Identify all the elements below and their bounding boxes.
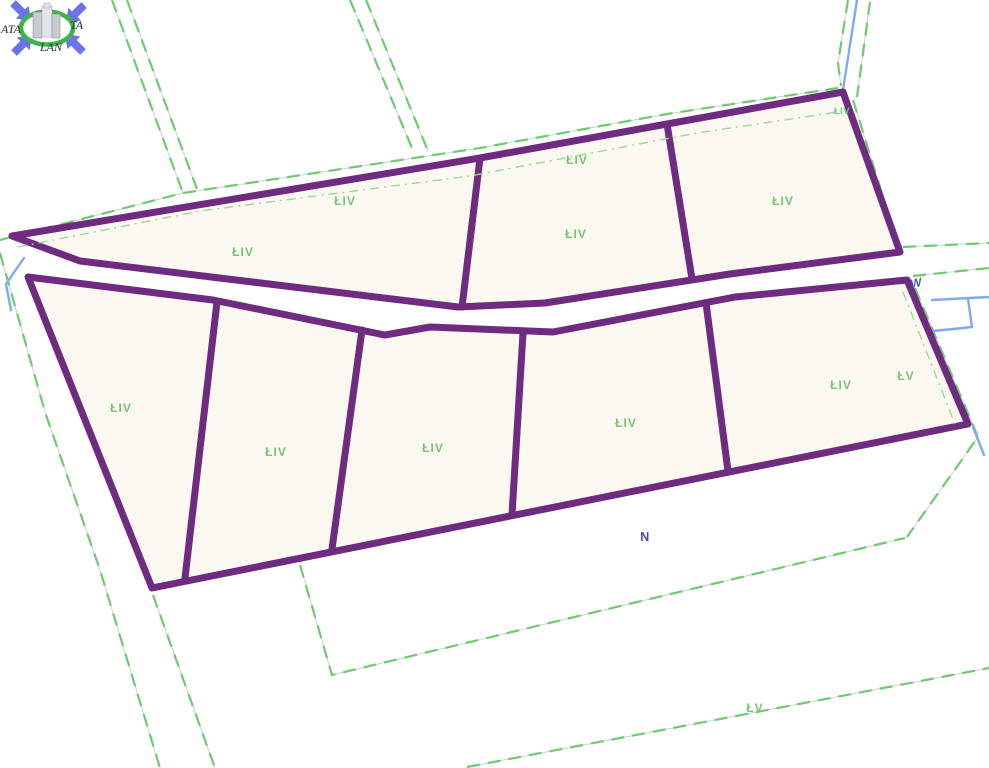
- logo-text-right: TA: [70, 18, 84, 32]
- land-class-label: ŁIV: [265, 445, 287, 459]
- map-canvas[interactable]: ŁIV ŁIV ŁIV ŁIV ŁIV ŁIV ŁIV ŁIV ŁIV ŁIV …: [0, 0, 989, 768]
- land-class-label: ŁIV: [830, 378, 852, 392]
- map-viewport[interactable]: ŁIV ŁIV ŁIV ŁIV ŁIV ŁIV ŁIV ŁIV ŁIV ŁIV …: [0, 0, 989, 768]
- land-class-label: ŁIV: [566, 153, 588, 167]
- land-class-label: ŁIV: [615, 416, 637, 430]
- wasteland-label: N: [640, 530, 650, 544]
- land-class-label: ŁV: [897, 369, 914, 383]
- land-class-label: ŁIV: [334, 194, 356, 208]
- land-class-label: ŁIV: [110, 401, 132, 415]
- logo-text-bottom: LAN: [39, 40, 63, 54]
- land-class-label: ŁIV: [834, 106, 850, 117]
- land-class-label: ŁIV: [772, 194, 794, 208]
- land-class-label: ŁV: [746, 701, 763, 715]
- land-class-label: ŁIV: [422, 441, 444, 455]
- land-class-label: ŁIV: [565, 227, 587, 241]
- service-logo: ATA TA LAN: [0, 0, 90, 59]
- logo-text-left: ATA: [0, 22, 22, 36]
- land-class-label: ŁIV: [232, 245, 254, 259]
